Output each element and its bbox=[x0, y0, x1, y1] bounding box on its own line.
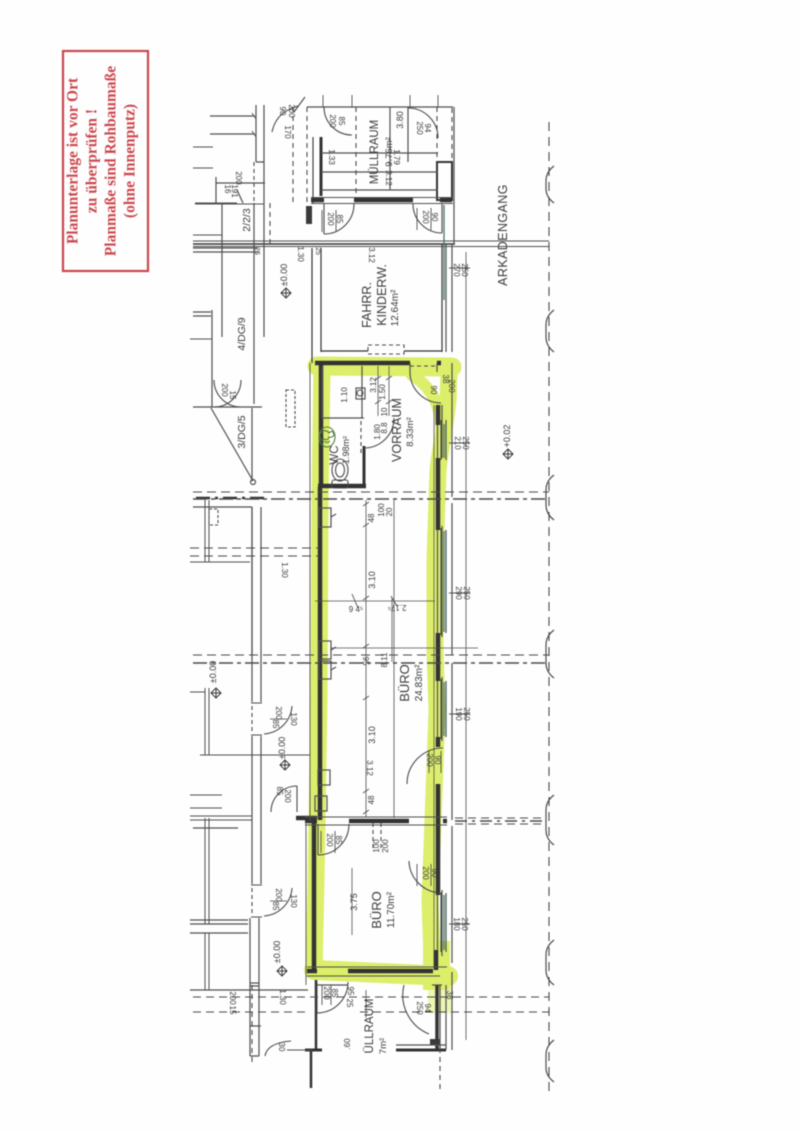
svg-text:8.8: 8.8 bbox=[380, 422, 389, 434]
svg-text:Planunterlage ist vor Ort: Planunterlage ist vor Ort bbox=[65, 77, 82, 244]
svg-text:130: 130 bbox=[289, 894, 298, 908]
svg-text:KINDERW.: KINDERW. bbox=[375, 264, 389, 326]
svg-text:85: 85 bbox=[330, 989, 339, 998]
svg-text:1.50: 1.50 bbox=[378, 384, 387, 400]
svg-text:90: 90 bbox=[433, 756, 442, 765]
svg-text:3.12: 3.12 bbox=[369, 377, 378, 393]
svg-text:200: 200 bbox=[220, 383, 229, 397]
svg-text:3.12: 3.12 bbox=[365, 760, 374, 776]
svg-text:11.70m²: 11.70m² bbox=[386, 891, 397, 928]
svg-text:250: 250 bbox=[462, 707, 471, 721]
svg-text:200: 200 bbox=[381, 839, 390, 853]
svg-text:200: 200 bbox=[283, 789, 292, 803]
svg-text:WC: WC bbox=[329, 445, 341, 464]
svg-text:3/DG/5: 3/DG/5 bbox=[236, 415, 248, 448]
svg-text:200: 200 bbox=[421, 210, 430, 224]
svg-text:200: 200 bbox=[287, 104, 296, 118]
svg-text:+0.02: +0.02 bbox=[502, 425, 512, 448]
svg-text:1.98m²: 1.98m² bbox=[341, 436, 351, 464]
svg-text:1.30: 1.30 bbox=[280, 562, 289, 578]
svg-text:Planmaße sind Rohbaumaße: Planmaße sind Rohbaumaße bbox=[103, 66, 120, 256]
svg-text:200: 200 bbox=[228, 991, 237, 1005]
svg-text:250: 250 bbox=[415, 1001, 424, 1015]
svg-text:1.10: 1.10 bbox=[340, 387, 349, 403]
svg-text:20: 20 bbox=[385, 507, 394, 516]
svg-text:30: 30 bbox=[277, 1043, 286, 1052]
svg-text:±0.00: ±0.00 bbox=[277, 737, 287, 759]
svg-text:38: 38 bbox=[445, 991, 454, 1000]
svg-text:8.11: 8.11 bbox=[380, 652, 389, 668]
svg-text:.60: .60 bbox=[343, 1038, 352, 1050]
svg-text:24.83m²: 24.83m² bbox=[414, 664, 425, 701]
svg-text:95: 95 bbox=[346, 987, 355, 996]
svg-text:250: 250 bbox=[461, 436, 470, 450]
svg-text:290: 290 bbox=[454, 586, 463, 600]
svg-text:3.10: 3.10 bbox=[367, 571, 377, 589]
svg-text:3.75: 3.75 bbox=[349, 893, 359, 911]
svg-text:1.30: 1.30 bbox=[278, 989, 287, 1005]
svg-text:90: 90 bbox=[429, 386, 438, 395]
svg-text:ÜLLRAUM: ÜLLRAUM bbox=[364, 999, 376, 1054]
svg-text:250: 250 bbox=[415, 121, 424, 135]
svg-text:85: 85 bbox=[335, 215, 344, 224]
svg-text:85: 85 bbox=[334, 836, 343, 845]
svg-text:8.33m²: 8.33m² bbox=[405, 417, 416, 447]
svg-text:180: 180 bbox=[452, 917, 461, 931]
svg-text:90: 90 bbox=[278, 107, 287, 116]
svg-text:100: 100 bbox=[372, 839, 381, 853]
svg-text:zu überprüfen !: zu überprüfen ! bbox=[84, 109, 101, 213]
svg-text:170: 170 bbox=[283, 125, 292, 139]
svg-text:25: 25 bbox=[345, 999, 354, 1008]
svg-text:95: 95 bbox=[361, 657, 370, 666]
svg-text:4/DG/9: 4/DG/9 bbox=[236, 317, 248, 350]
svg-text:130: 130 bbox=[289, 712, 298, 726]
svg-text:90: 90 bbox=[430, 869, 439, 878]
svg-text:250: 250 bbox=[460, 917, 469, 931]
svg-text:85: 85 bbox=[271, 902, 280, 911]
svg-text:200: 200 bbox=[421, 866, 430, 880]
svg-text:90: 90 bbox=[430, 213, 439, 222]
svg-text:BÜRO: BÜRO bbox=[397, 664, 412, 702]
svg-text:7m²: 7m² bbox=[378, 1038, 389, 1054]
svg-text:270: 270 bbox=[452, 263, 461, 277]
svg-text:85: 85 bbox=[271, 720, 280, 729]
svg-text:3.80: 3.80 bbox=[395, 111, 405, 129]
svg-text:25: 25 bbox=[314, 247, 321, 255]
svg-text:200: 200 bbox=[326, 212, 335, 226]
svg-text:1.33: 1.33 bbox=[327, 149, 336, 165]
svg-text:210: 210 bbox=[453, 436, 462, 450]
svg-text:15: 15 bbox=[228, 391, 237, 400]
svg-text:85: 85 bbox=[275, 787, 284, 796]
svg-text:10: 10 bbox=[380, 407, 389, 416]
svg-text:BÜRO: BÜRO bbox=[369, 891, 384, 929]
svg-text:15: 15 bbox=[228, 1006, 237, 1015]
svg-text:±0.00: ±0.00 bbox=[208, 661, 218, 683]
svg-text:2.17⁵: 2.17⁵ bbox=[388, 603, 407, 612]
svg-text:1.30: 1.30 bbox=[296, 246, 305, 262]
svg-text:200: 200 bbox=[325, 833, 334, 847]
svg-text:250: 250 bbox=[460, 263, 469, 277]
svg-text:1.79: 1.79 bbox=[392, 149, 401, 165]
svg-text:±0.00: ±0.00 bbox=[279, 264, 289, 286]
svg-text:FAHRR.: FAHRR. bbox=[360, 282, 374, 328]
svg-text:(ohne Innenputz): (ohne Innenputz) bbox=[122, 104, 139, 218]
svg-text:3.10: 3.10 bbox=[367, 726, 377, 744]
svg-text:VORRAUM: VORRAUM bbox=[390, 398, 404, 462]
svg-text:2/2/3: 2/2/3 bbox=[241, 208, 253, 232]
svg-text:12.64m²: 12.64m² bbox=[390, 289, 401, 326]
svg-text:200: 200 bbox=[322, 986, 331, 1000]
svg-text:25: 25 bbox=[253, 247, 260, 255]
svg-text:9 4⁵: 9 4⁵ bbox=[349, 605, 363, 614]
svg-text:85: 85 bbox=[337, 117, 346, 126]
svg-text:48: 48 bbox=[367, 795, 376, 804]
svg-text:MÜLLRAUM: MÜLLRAUM bbox=[369, 120, 381, 185]
svg-text:200: 200 bbox=[328, 114, 337, 128]
svg-text:94: 94 bbox=[423, 1004, 432, 1013]
svg-text:200: 200 bbox=[425, 753, 434, 767]
svg-text:200: 200 bbox=[234, 171, 243, 185]
svg-text:191: 191 bbox=[230, 184, 239, 198]
svg-text:48: 48 bbox=[367, 513, 376, 522]
svg-text:94: 94 bbox=[423, 124, 432, 133]
svg-text:200: 200 bbox=[274, 888, 283, 902]
svg-text:3.12: 3.12 bbox=[384, 170, 393, 186]
svg-text:±0.00: ±0.00 bbox=[272, 941, 282, 963]
svg-text:ARKADENGANG: ARKADENGANG bbox=[496, 184, 510, 286]
svg-text:200: 200 bbox=[274, 706, 283, 720]
svg-text:190: 190 bbox=[454, 707, 463, 721]
svg-text:250: 250 bbox=[462, 586, 471, 600]
svg-text:200: 200 bbox=[447, 379, 456, 393]
svg-text:3.12: 3.12 bbox=[367, 247, 376, 263]
